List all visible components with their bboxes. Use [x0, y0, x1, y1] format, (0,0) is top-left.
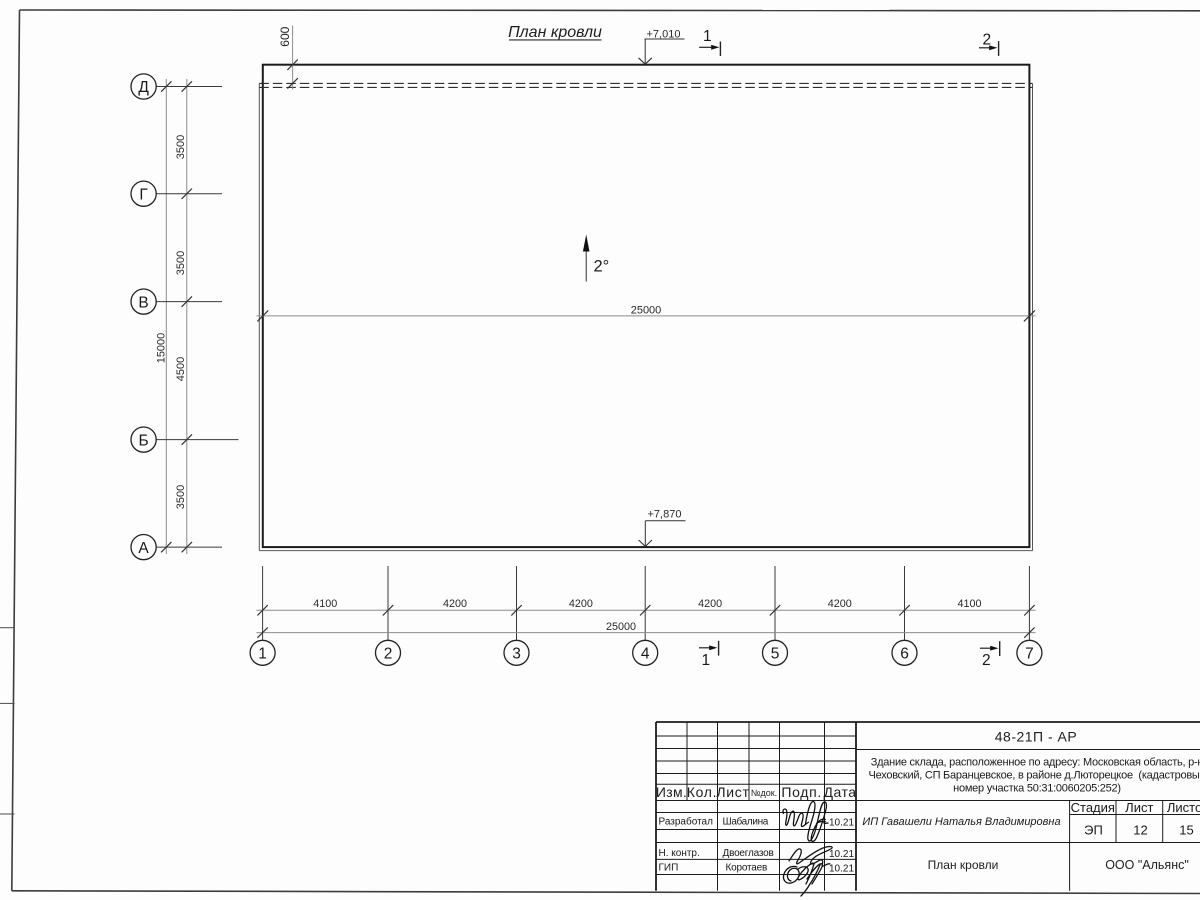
svg-text:Подп.: Подп.: [781, 784, 822, 800]
svg-text:Изм.: Изм.: [656, 784, 687, 800]
svg-text:4200: 4200: [569, 598, 593, 610]
svg-text:25000: 25000: [606, 621, 636, 633]
svg-text:3500: 3500: [175, 251, 187, 275]
svg-text:Шабалина: Шабалина: [723, 816, 769, 828]
svg-text:7: 7: [1025, 645, 1034, 662]
svg-text:4: 4: [641, 645, 650, 662]
svg-text:Лист: Лист: [1125, 800, 1153, 815]
svg-text:6: 6: [900, 645, 909, 662]
svg-text:3: 3: [512, 645, 521, 662]
svg-text:10.21: 10.21: [829, 864, 854, 875]
svg-text:Стадия: Стадия: [1071, 800, 1115, 815]
svg-text:4100: 4100: [313, 598, 337, 610]
svg-text:1: 1: [702, 652, 711, 669]
svg-text:10.21: 10.21: [829, 818, 854, 829]
svg-text:Здание склада, расположенное п: Здание склада, расположенное по адресу: …: [871, 756, 1200, 768]
svg-text:1: 1: [703, 28, 712, 45]
svg-text:600: 600: [278, 26, 292, 46]
svg-text:Д: Д: [138, 79, 149, 96]
svg-text:В: В: [138, 294, 148, 311]
svg-text:3500: 3500: [175, 485, 187, 509]
svg-text:ИП Гавашели Наталья Владимиров: ИП Гавашели Наталья Владимировна: [862, 816, 1060, 828]
svg-text:ЭП: ЭП: [1084, 823, 1103, 838]
svg-text:1: 1: [258, 645, 267, 662]
svg-text:Коротаев: Коротаев: [726, 863, 768, 874]
svg-text:А: А: [138, 540, 149, 557]
svg-text:Кол.: Кол.: [687, 784, 718, 800]
svg-text:12: 12: [1133, 823, 1147, 838]
svg-text:4200: 4200: [698, 598, 722, 610]
svg-text:4500: 4500: [175, 357, 187, 381]
svg-text:План кровли: План кровли: [508, 24, 602, 41]
svg-text:номер участка 50:31:0060205:25: номер участка 50:31:0060205:252): [953, 782, 1121, 794]
svg-text:План кровли: План кровли: [928, 858, 999, 872]
svg-text:4100: 4100: [957, 598, 981, 610]
svg-text:15: 15: [1179, 823, 1193, 838]
svg-text:48-21П - АР: 48-21П - АР: [995, 729, 1078, 745]
svg-text:Дата: Дата: [823, 784, 856, 800]
svg-text:ООО "Альянс": ООО "Альянс": [1105, 858, 1189, 872]
svg-text:№док.: №док.: [751, 788, 777, 798]
svg-text:2: 2: [384, 645, 393, 662]
svg-text:Листов: Листов: [1167, 800, 1200, 815]
svg-text:Н. контр.: Н. контр.: [659, 848, 700, 859]
svg-text:Двоеглазов: Двоеглазов: [723, 848, 774, 859]
svg-text:4200: 4200: [443, 598, 467, 610]
svg-text:Разработал: Разработал: [659, 816, 714, 828]
svg-text:Г: Г: [139, 186, 148, 203]
svg-text:2°: 2°: [594, 258, 610, 276]
svg-text:25000: 25000: [631, 304, 662, 316]
svg-text:Б: Б: [139, 432, 149, 449]
svg-text:4200: 4200: [828, 598, 852, 610]
svg-text:5: 5: [771, 645, 780, 662]
svg-text:10.21: 10.21: [829, 849, 854, 860]
svg-text:ГИП: ГИП: [659, 863, 679, 874]
svg-text:+7,870: +7,870: [648, 508, 682, 520]
svg-text:3500: 3500: [175, 135, 187, 159]
svg-text:2: 2: [982, 652, 991, 669]
svg-text:15000: 15000: [155, 333, 167, 364]
svg-text:Лист: Лист: [716, 784, 749, 800]
svg-text:Чеховский, СП Баранцевское, в: Чеховский, СП Баранцевское, в районе д.Л…: [869, 769, 1200, 781]
